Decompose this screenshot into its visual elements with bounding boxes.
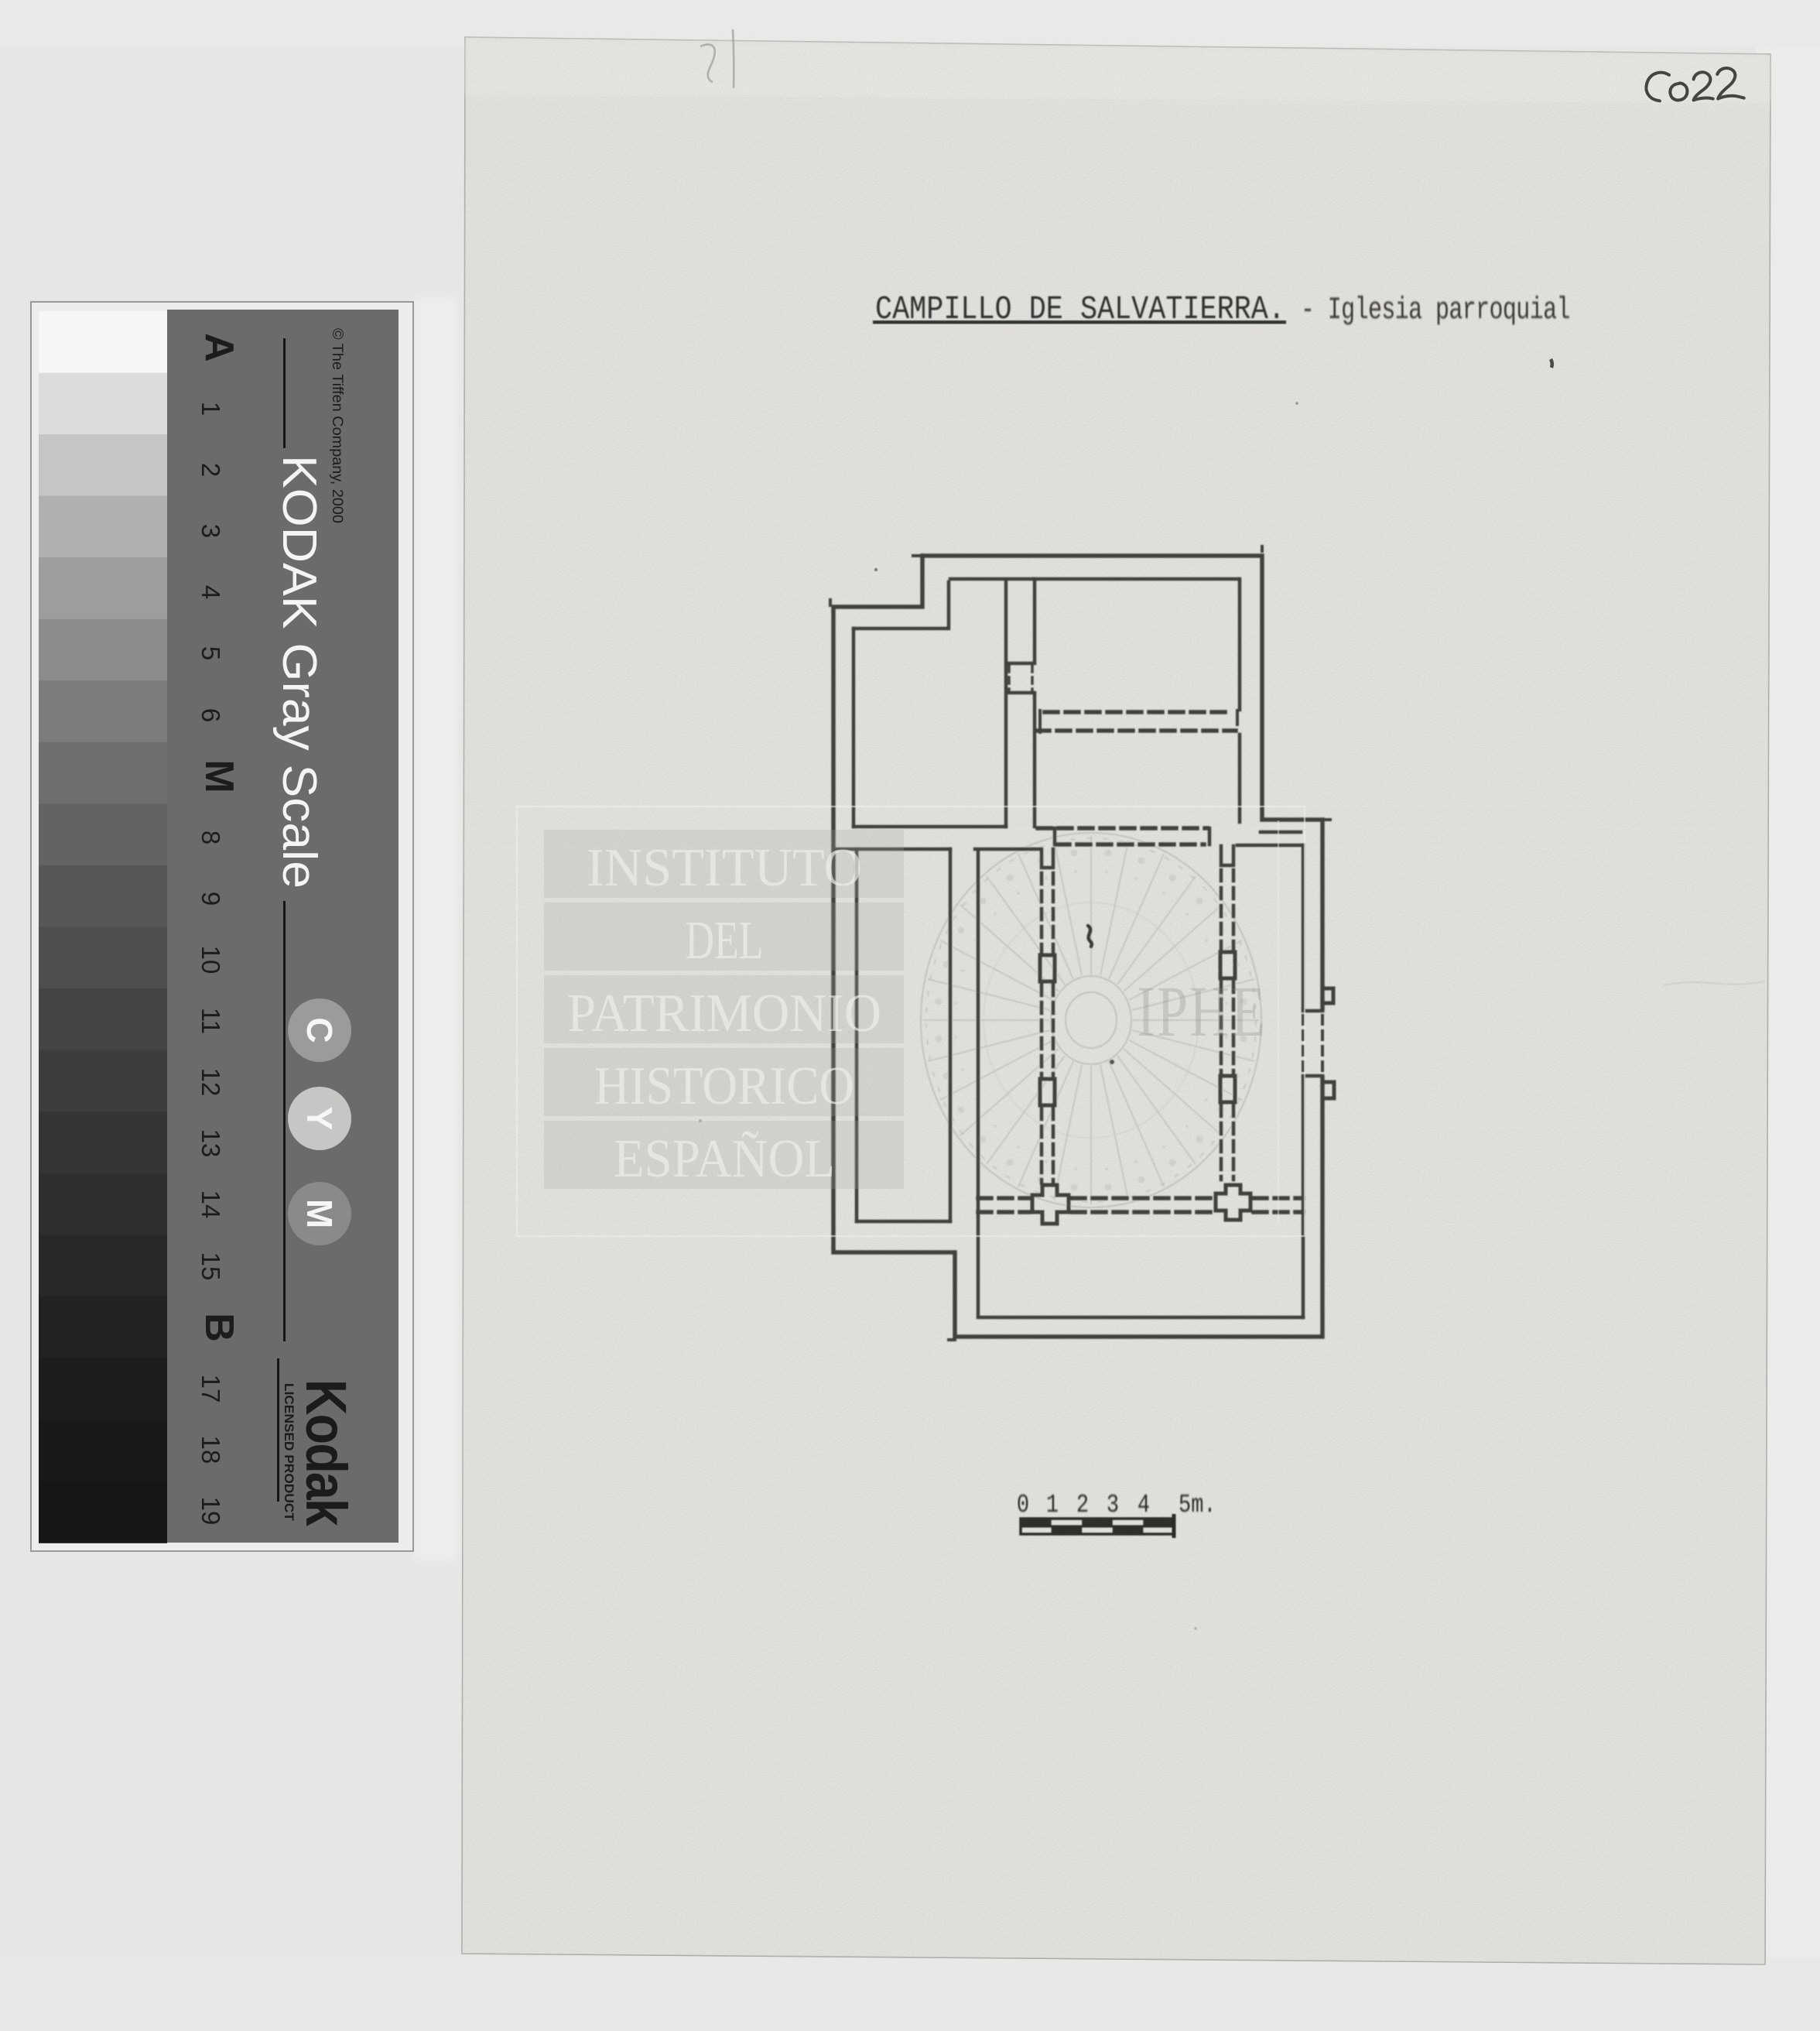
svg-text:- Iglesia parroquial: - Iglesia parroquial [1301, 293, 1570, 327]
svg-text:INSTITUTO: INSTITUTO [587, 838, 862, 898]
svg-text:ESPAÑOL: ESPAÑOL [614, 1129, 835, 1189]
svg-text:IPHE: IPHE [1137, 972, 1267, 1052]
svg-text:14: 14 [197, 1190, 225, 1219]
svg-text:LICENSED PRODUCT: LICENSED PRODUCT [282, 1383, 296, 1522]
svg-text:18: 18 [197, 1436, 225, 1464]
svg-text:A: A [197, 333, 241, 362]
svg-text:4: 4 [197, 585, 225, 599]
svg-text:C: C [299, 1017, 340, 1043]
svg-text:19: 19 [197, 1497, 225, 1526]
svg-text:KODAK Gray Scale: KODAK Gray Scale [272, 455, 326, 889]
svg-text:5: 5 [197, 646, 225, 660]
svg-text:0: 0 [1017, 1491, 1029, 1520]
svg-text:HISTORICO: HISTORICO [594, 1057, 854, 1116]
svg-text:15: 15 [197, 1252, 225, 1281]
svg-text:3: 3 [197, 524, 225, 538]
svg-text:12: 12 [197, 1068, 225, 1097]
svg-text:M: M [299, 1199, 340, 1228]
svg-text:5m.: 5m. [1179, 1491, 1216, 1520]
svg-text:© The Tiffen Company, 2000: © The Tiffen Company, 2000 [329, 328, 345, 523]
svg-text:3: 3 [1107, 1491, 1119, 1520]
svg-text:10: 10 [197, 946, 225, 974]
svg-text:2: 2 [197, 463, 225, 477]
svg-text:17: 17 [197, 1375, 225, 1403]
svg-text:13: 13 [197, 1129, 225, 1158]
svg-text:M: M [197, 759, 241, 793]
svg-text:9: 9 [197, 892, 225, 906]
svg-text:PATRIMONIO: PATRIMONIO [567, 984, 881, 1043]
svg-text:DEL: DEL [686, 911, 764, 971]
svg-text:1: 1 [197, 402, 225, 416]
svg-text:11: 11 [197, 1008, 225, 1034]
svg-text:8: 8 [197, 831, 225, 844]
svg-text:2: 2 [1076, 1491, 1089, 1520]
svg-text:1: 1 [1046, 1491, 1059, 1520]
svg-text:Y: Y [299, 1107, 340, 1131]
svg-text:B: B [197, 1313, 241, 1342]
svg-text:6: 6 [197, 708, 225, 722]
svg-text:Kodak: Kodak [294, 1379, 358, 1526]
svg-text:4: 4 [1137, 1491, 1150, 1520]
